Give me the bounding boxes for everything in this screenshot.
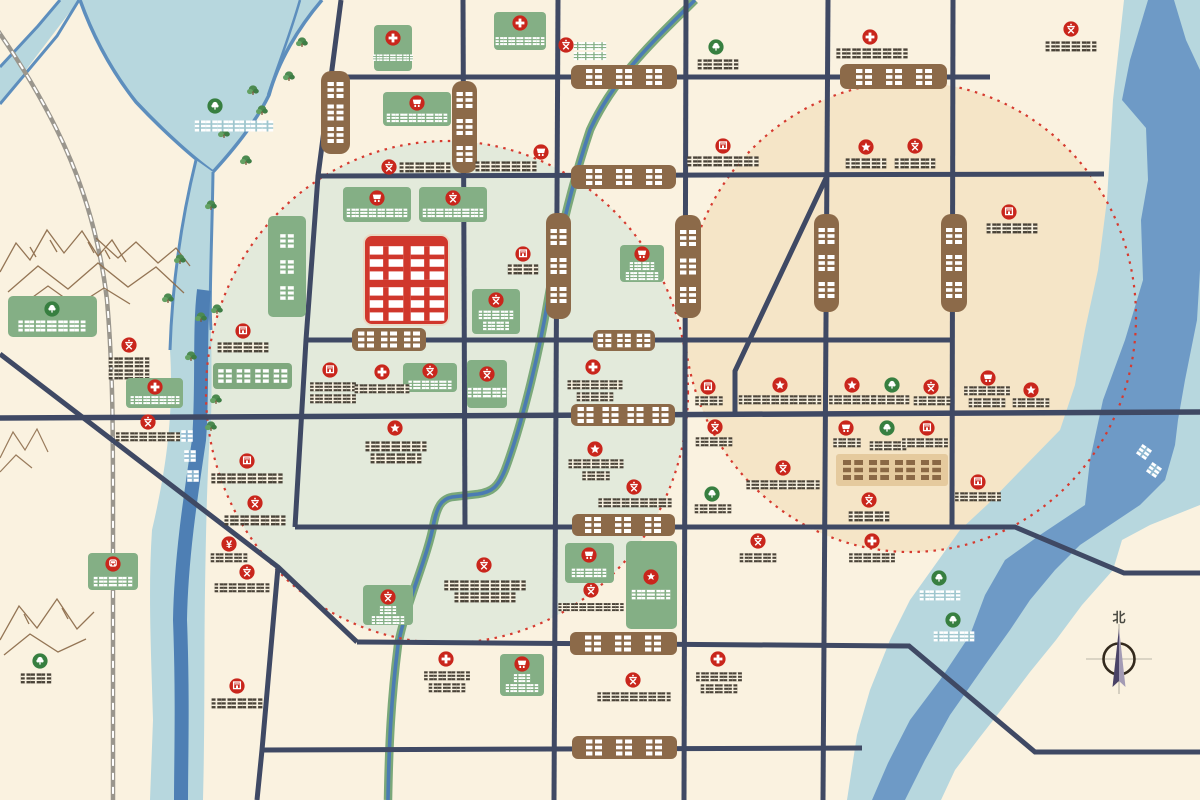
svg-text:北: 北 — [1112, 610, 1125, 625]
